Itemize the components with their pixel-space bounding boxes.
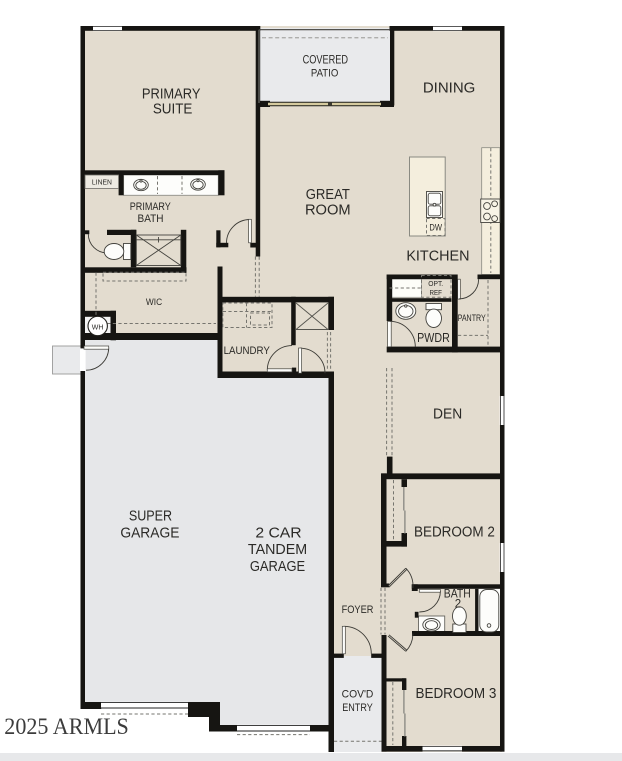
svg-text:BEDROOM 2: BEDROOM 2 — [414, 524, 495, 541]
svg-text:2 CAR: 2 CAR — [255, 525, 301, 542]
svg-text:FOYER: FOYER — [342, 604, 374, 616]
svg-text:PRIMARY: PRIMARY — [130, 201, 171, 213]
svg-text:PRIMARY: PRIMARY — [142, 84, 201, 101]
svg-text:BEDROOM 3: BEDROOM 3 — [415, 685, 496, 702]
svg-text:SUPER: SUPER — [129, 506, 172, 523]
svg-text:GARAGE: GARAGE — [120, 525, 179, 542]
svg-text:DW: DW — [429, 222, 442, 233]
svg-text:LAUNDRY: LAUNDRY — [224, 346, 270, 358]
svg-text:REF: REF — [429, 290, 441, 297]
svg-text:WH: WH — [92, 324, 104, 331]
svg-text:TANDEM: TANDEM — [248, 542, 307, 558]
svg-text:PWDR: PWDR — [417, 331, 450, 345]
svg-text:ROOM: ROOM — [305, 202, 351, 218]
svg-text:COVERED: COVERED — [303, 55, 349, 67]
svg-text:DINING: DINING — [423, 79, 476, 96]
svg-text:PANTRY: PANTRY — [458, 313, 487, 323]
svg-text:ENTRY: ENTRY — [342, 702, 373, 714]
svg-text:SUITE: SUITE — [153, 101, 193, 118]
svg-text:GARAGE: GARAGE — [250, 557, 305, 574]
svg-text:COV'D: COV'D — [342, 688, 374, 701]
svg-text:LINEN: LINEN — [92, 180, 112, 187]
svg-text:DEN: DEN — [433, 406, 462, 423]
svg-text:BATH: BATH — [138, 214, 164, 225]
svg-text:2: 2 — [455, 599, 461, 611]
svg-text:KITCHEN: KITCHEN — [406, 248, 469, 264]
svg-text:WIC: WIC — [146, 297, 162, 307]
svg-text:GREAT: GREAT — [306, 185, 351, 202]
svg-text:PATIO: PATIO — [311, 67, 338, 80]
svg-text:OPT.: OPT. — [428, 281, 443, 288]
svg-text:2025 ARMLS: 2025 ARMLS — [4, 713, 129, 739]
